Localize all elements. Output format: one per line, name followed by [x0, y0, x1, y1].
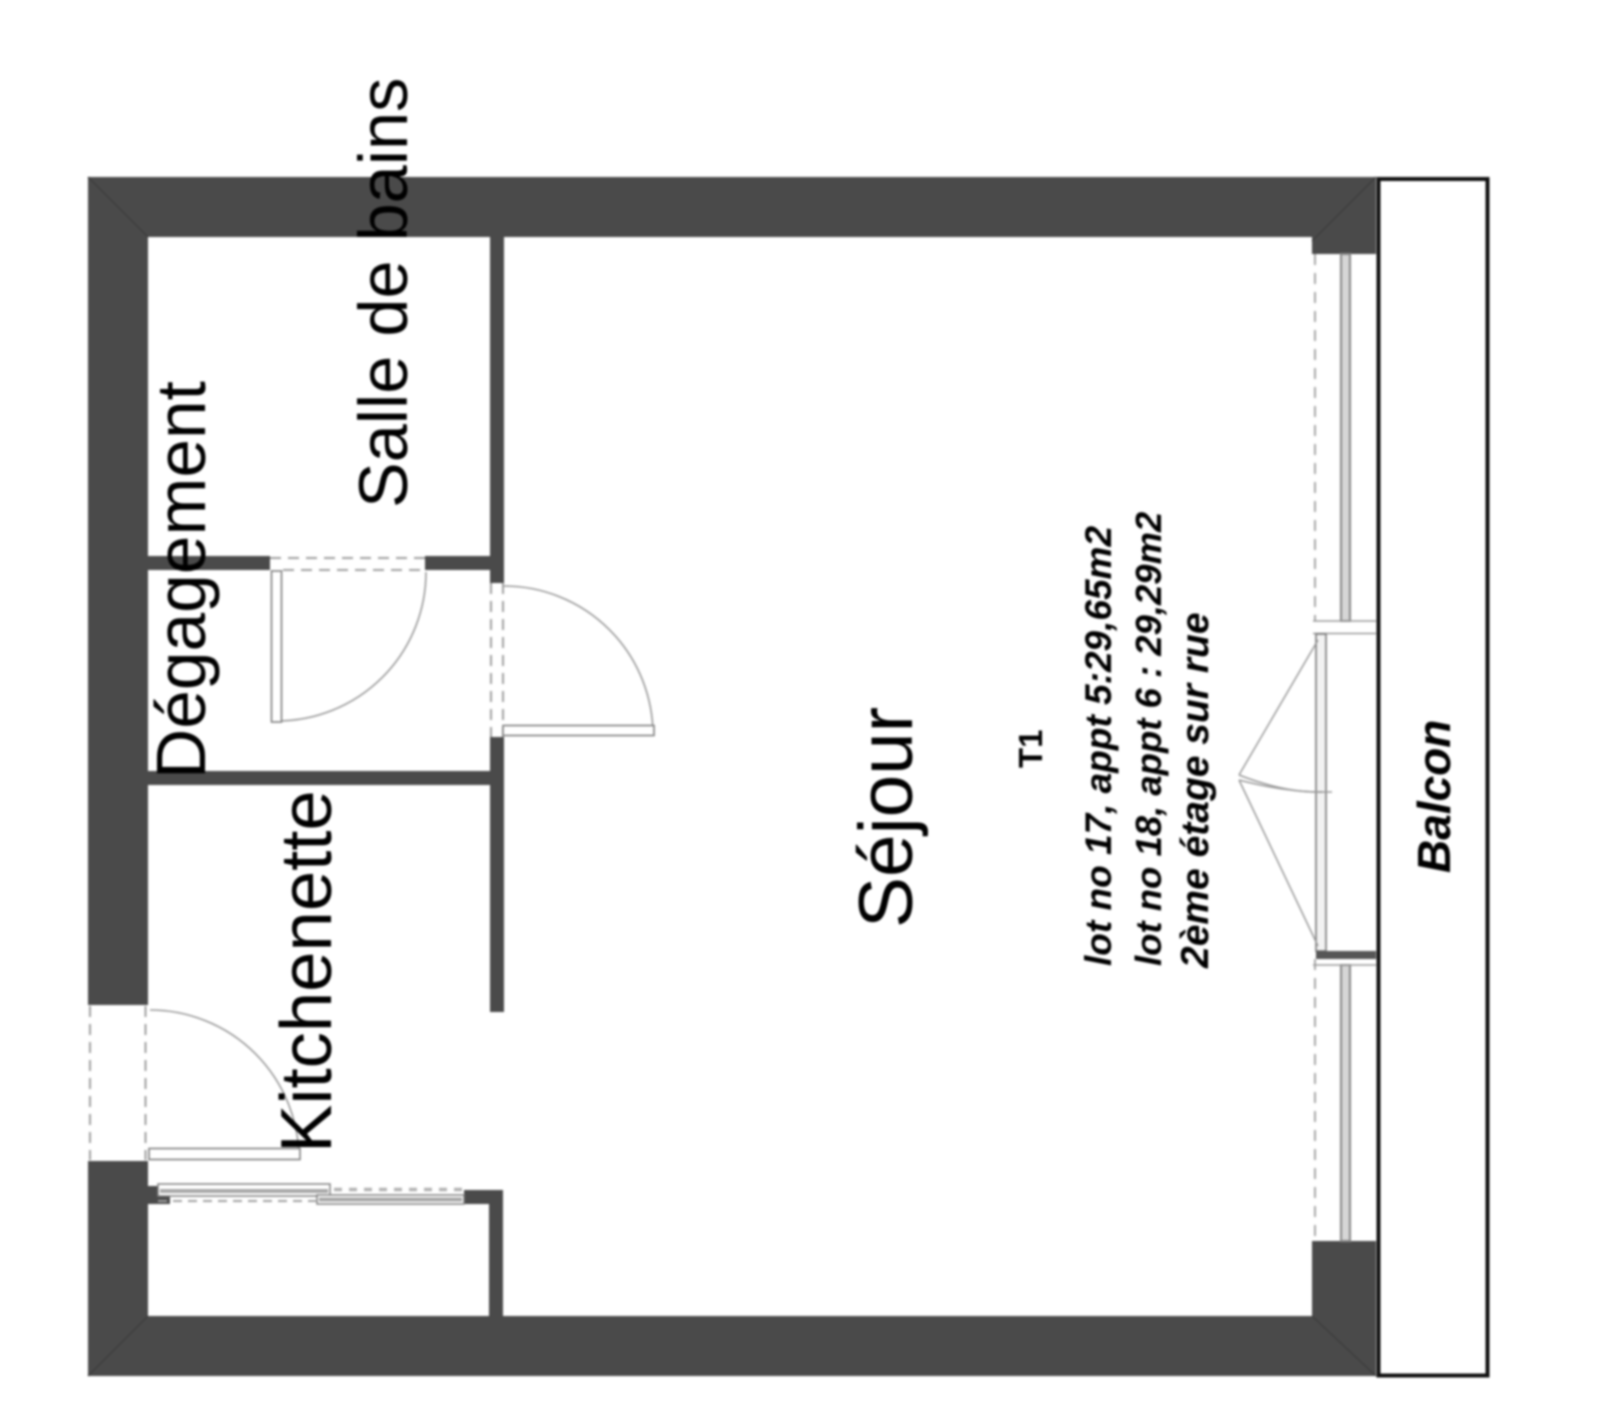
svg-text:Kitchenette: Kitchenette [266, 790, 347, 1153]
svg-text:2ème étage sur rue: 2ème étage sur rue [1174, 612, 1217, 969]
svg-text:lot no 17, appt 5:29,65m2: lot no 17, appt 5:29,65m2 [1078, 526, 1119, 966]
svg-text:Salle de bains: Salle de bains [345, 78, 422, 508]
svg-text:Dégagement: Dégagement [142, 381, 220, 779]
svg-text:Balcon: Balcon [1408, 720, 1460, 873]
svg-text:lot no 18, appt 6 : 29,29m2: lot no 18, appt 6 : 29,29m2 [1128, 512, 1169, 966]
svg-text:Séjour: Séjour [844, 707, 929, 928]
svg-text:T1: T1 [1012, 729, 1049, 768]
